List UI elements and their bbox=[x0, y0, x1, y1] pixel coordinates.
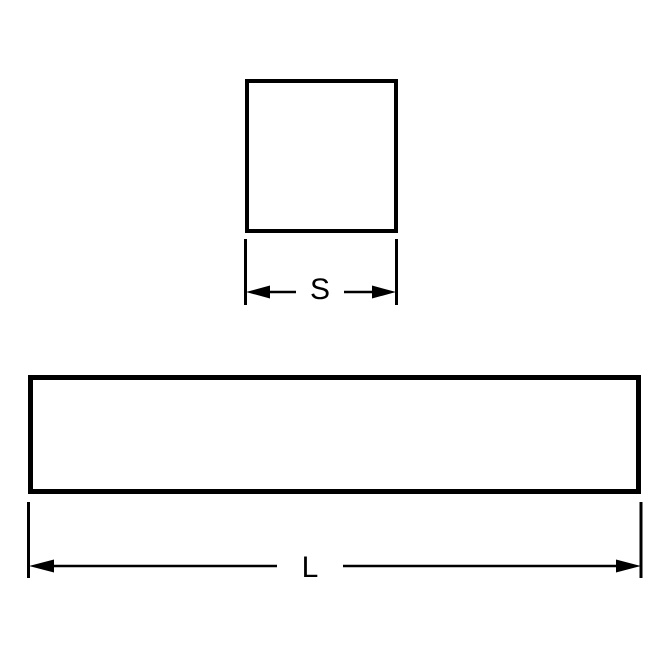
l-arrowhead-right-icon bbox=[616, 560, 641, 573]
l-dimension-label: L bbox=[302, 551, 319, 584]
bar-outline bbox=[31, 378, 639, 492]
s-dimension-label: S bbox=[310, 273, 330, 306]
square-cross-section-view: S bbox=[246, 81, 397, 306]
bar-length-view: L bbox=[29, 378, 642, 585]
s-arrowhead-right-icon bbox=[372, 286, 396, 299]
l-arrowhead-left-icon bbox=[29, 560, 54, 573]
key-steel-dimension-drawing: S L bbox=[0, 0, 670, 670]
s-arrowhead-left-icon bbox=[246, 286, 270, 299]
square-outline bbox=[247, 81, 396, 231]
